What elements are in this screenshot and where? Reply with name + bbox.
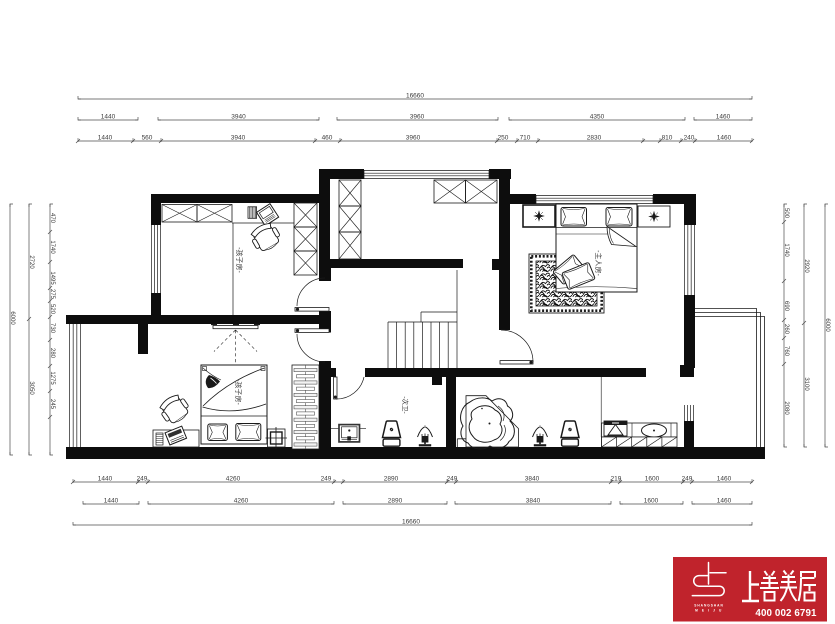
svg-text:-主人房-: -主人房- bbox=[594, 250, 603, 276]
svg-text:275: 275 bbox=[49, 289, 55, 300]
svg-text:1600: 1600 bbox=[645, 476, 660, 483]
svg-text:1495: 1495 bbox=[49, 271, 55, 285]
svg-text:1440: 1440 bbox=[98, 476, 113, 483]
svg-text:240: 240 bbox=[684, 135, 695, 142]
svg-text:3840: 3840 bbox=[526, 498, 541, 505]
svg-text:760: 760 bbox=[783, 346, 789, 357]
svg-text:-孩子房-: -孩子房- bbox=[235, 247, 244, 273]
svg-text:1460: 1460 bbox=[717, 498, 732, 505]
svg-text:3940: 3940 bbox=[231, 135, 246, 142]
svg-text:3940: 3940 bbox=[231, 114, 246, 121]
svg-text:1460: 1460 bbox=[717, 476, 732, 483]
svg-text:3960: 3960 bbox=[406, 135, 421, 142]
svg-text:3100: 3100 bbox=[803, 377, 809, 391]
svg-text:470: 470 bbox=[49, 213, 55, 224]
svg-text:810: 810 bbox=[662, 135, 673, 142]
svg-text:260: 260 bbox=[783, 324, 789, 335]
svg-text:249: 249 bbox=[321, 476, 332, 483]
svg-text:249: 249 bbox=[682, 476, 693, 483]
svg-text:2890: 2890 bbox=[384, 476, 399, 483]
svg-text:6000: 6000 bbox=[9, 311, 15, 325]
svg-text:1460: 1460 bbox=[717, 135, 732, 142]
svg-text:730: 730 bbox=[49, 323, 55, 334]
svg-text:690: 690 bbox=[783, 301, 789, 312]
svg-text:-次卫-: -次卫- bbox=[401, 396, 410, 413]
svg-text:219: 219 bbox=[611, 476, 622, 483]
svg-text:-孩子房-: -孩子房- bbox=[234, 379, 243, 405]
svg-text:1440: 1440 bbox=[101, 114, 116, 121]
svg-text:16660: 16660 bbox=[402, 519, 420, 526]
svg-text:2920: 2920 bbox=[803, 259, 809, 273]
svg-text:1275: 1275 bbox=[49, 371, 55, 385]
svg-text:2720: 2720 bbox=[28, 255, 34, 269]
svg-text:249: 249 bbox=[137, 476, 148, 483]
svg-text:1740: 1740 bbox=[49, 240, 55, 254]
svg-text:3960: 3960 bbox=[410, 114, 425, 121]
svg-text:3050: 3050 bbox=[28, 381, 34, 395]
svg-text:1440: 1440 bbox=[98, 135, 113, 142]
svg-text:2890: 2890 bbox=[388, 498, 403, 505]
svg-text:3840: 3840 bbox=[525, 476, 540, 483]
svg-text:249: 249 bbox=[447, 476, 458, 483]
svg-text:6000: 6000 bbox=[824, 318, 830, 332]
svg-text:2080: 2080 bbox=[783, 401, 789, 415]
svg-text:250: 250 bbox=[498, 135, 509, 142]
svg-text:710: 710 bbox=[520, 135, 531, 142]
svg-text:1600: 1600 bbox=[644, 498, 659, 505]
svg-text:4260: 4260 bbox=[226, 476, 241, 483]
svg-text:560: 560 bbox=[142, 135, 153, 142]
svg-text:2830: 2830 bbox=[587, 135, 602, 142]
svg-text:1740: 1740 bbox=[783, 243, 789, 257]
svg-text:400 002 6791: 400 002 6791 bbox=[755, 608, 817, 619]
svg-text:245: 245 bbox=[49, 399, 55, 410]
svg-text:16660: 16660 bbox=[406, 93, 424, 100]
svg-text:1440: 1440 bbox=[104, 498, 119, 505]
svg-text:520: 520 bbox=[49, 304, 55, 315]
svg-text:M E I J U: M E I J U bbox=[695, 609, 723, 613]
svg-text:4350: 4350 bbox=[590, 114, 605, 121]
svg-text:1460: 1460 bbox=[716, 114, 731, 121]
svg-text:460: 460 bbox=[322, 135, 333, 142]
svg-text:500: 500 bbox=[783, 208, 789, 219]
svg-text:4260: 4260 bbox=[234, 498, 249, 505]
svg-text:SHANGSHAN: SHANGSHAN bbox=[694, 604, 724, 608]
svg-text:280: 280 bbox=[49, 348, 55, 359]
